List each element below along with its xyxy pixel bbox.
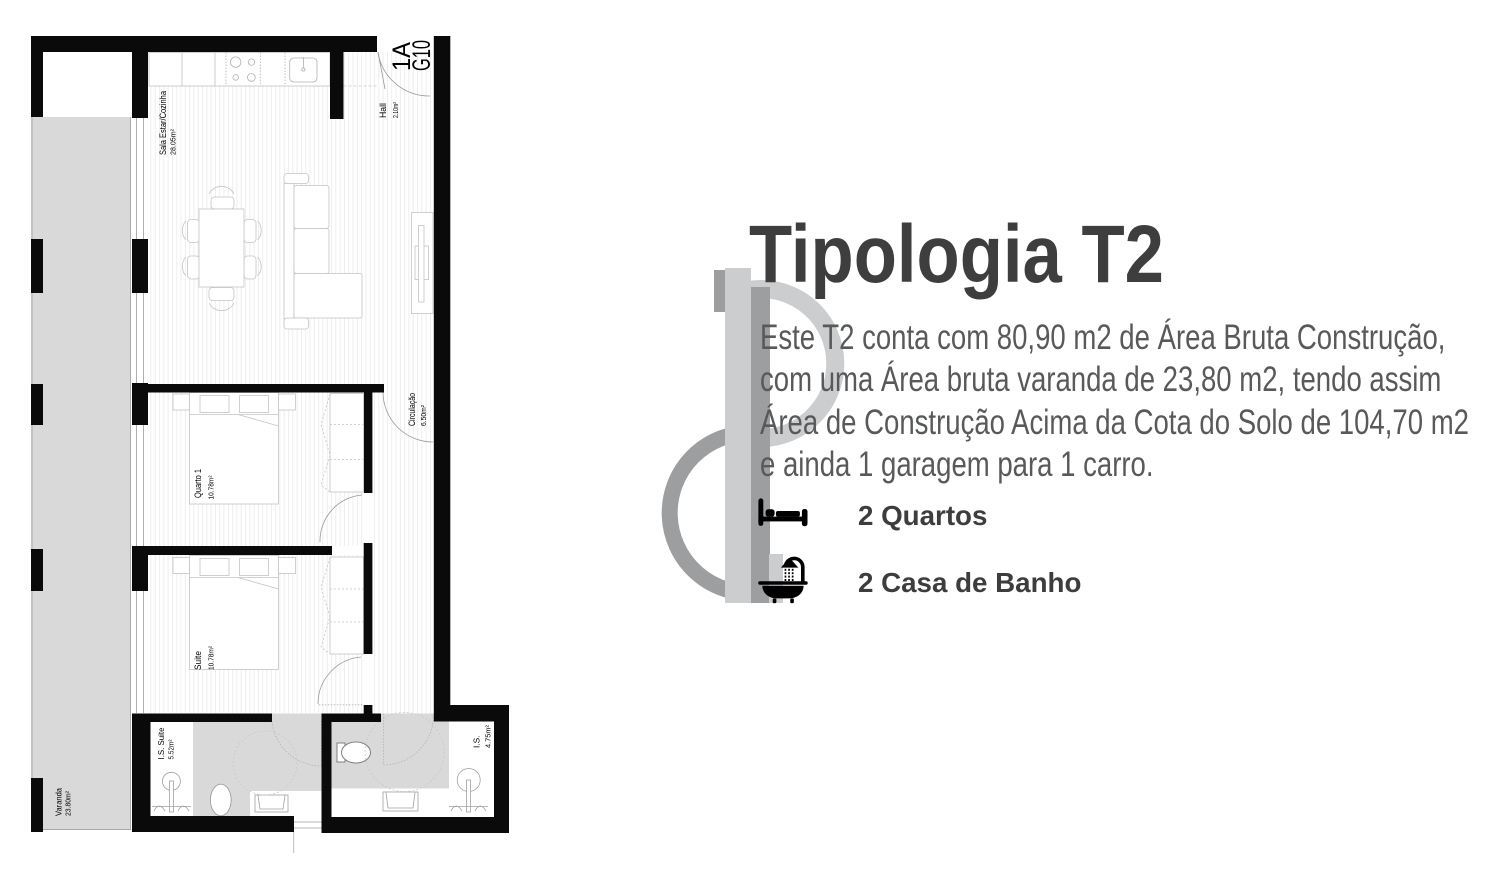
svg-text:Hall: Hall: [378, 103, 388, 118]
svg-text:2.10m²: 2.10m²: [391, 102, 400, 118]
svg-text:10.78m²: 10.78m²: [207, 646, 216, 670]
svg-text:Quarto 1: Quarto 1: [193, 469, 203, 498]
svg-text:Sala Estar/Cozinha: Sala Estar/Cozinha: [158, 91, 168, 155]
svg-text:I.S. Suite: I.S. Suite: [156, 727, 166, 759]
svg-text:5.52m²: 5.52m²: [167, 739, 176, 759]
svg-text:G10: G10: [408, 40, 436, 71]
svg-text:Suite: Suite: [193, 651, 203, 670]
svg-text:Varanda: Varanda: [54, 788, 64, 816]
svg-text:23.80m²: 23.80m²: [64, 791, 73, 816]
svg-text:4.75m²: 4.75m²: [484, 725, 493, 748]
svg-text:10.78m²: 10.78m²: [207, 475, 216, 499]
svg-text:I.S.: I.S.: [472, 736, 482, 749]
svg-text:28.05m²: 28.05m²: [169, 129, 178, 155]
svg-text:Circulação: Circulação: [407, 393, 417, 426]
svg-text:6.50m²: 6.50m²: [419, 405, 428, 426]
